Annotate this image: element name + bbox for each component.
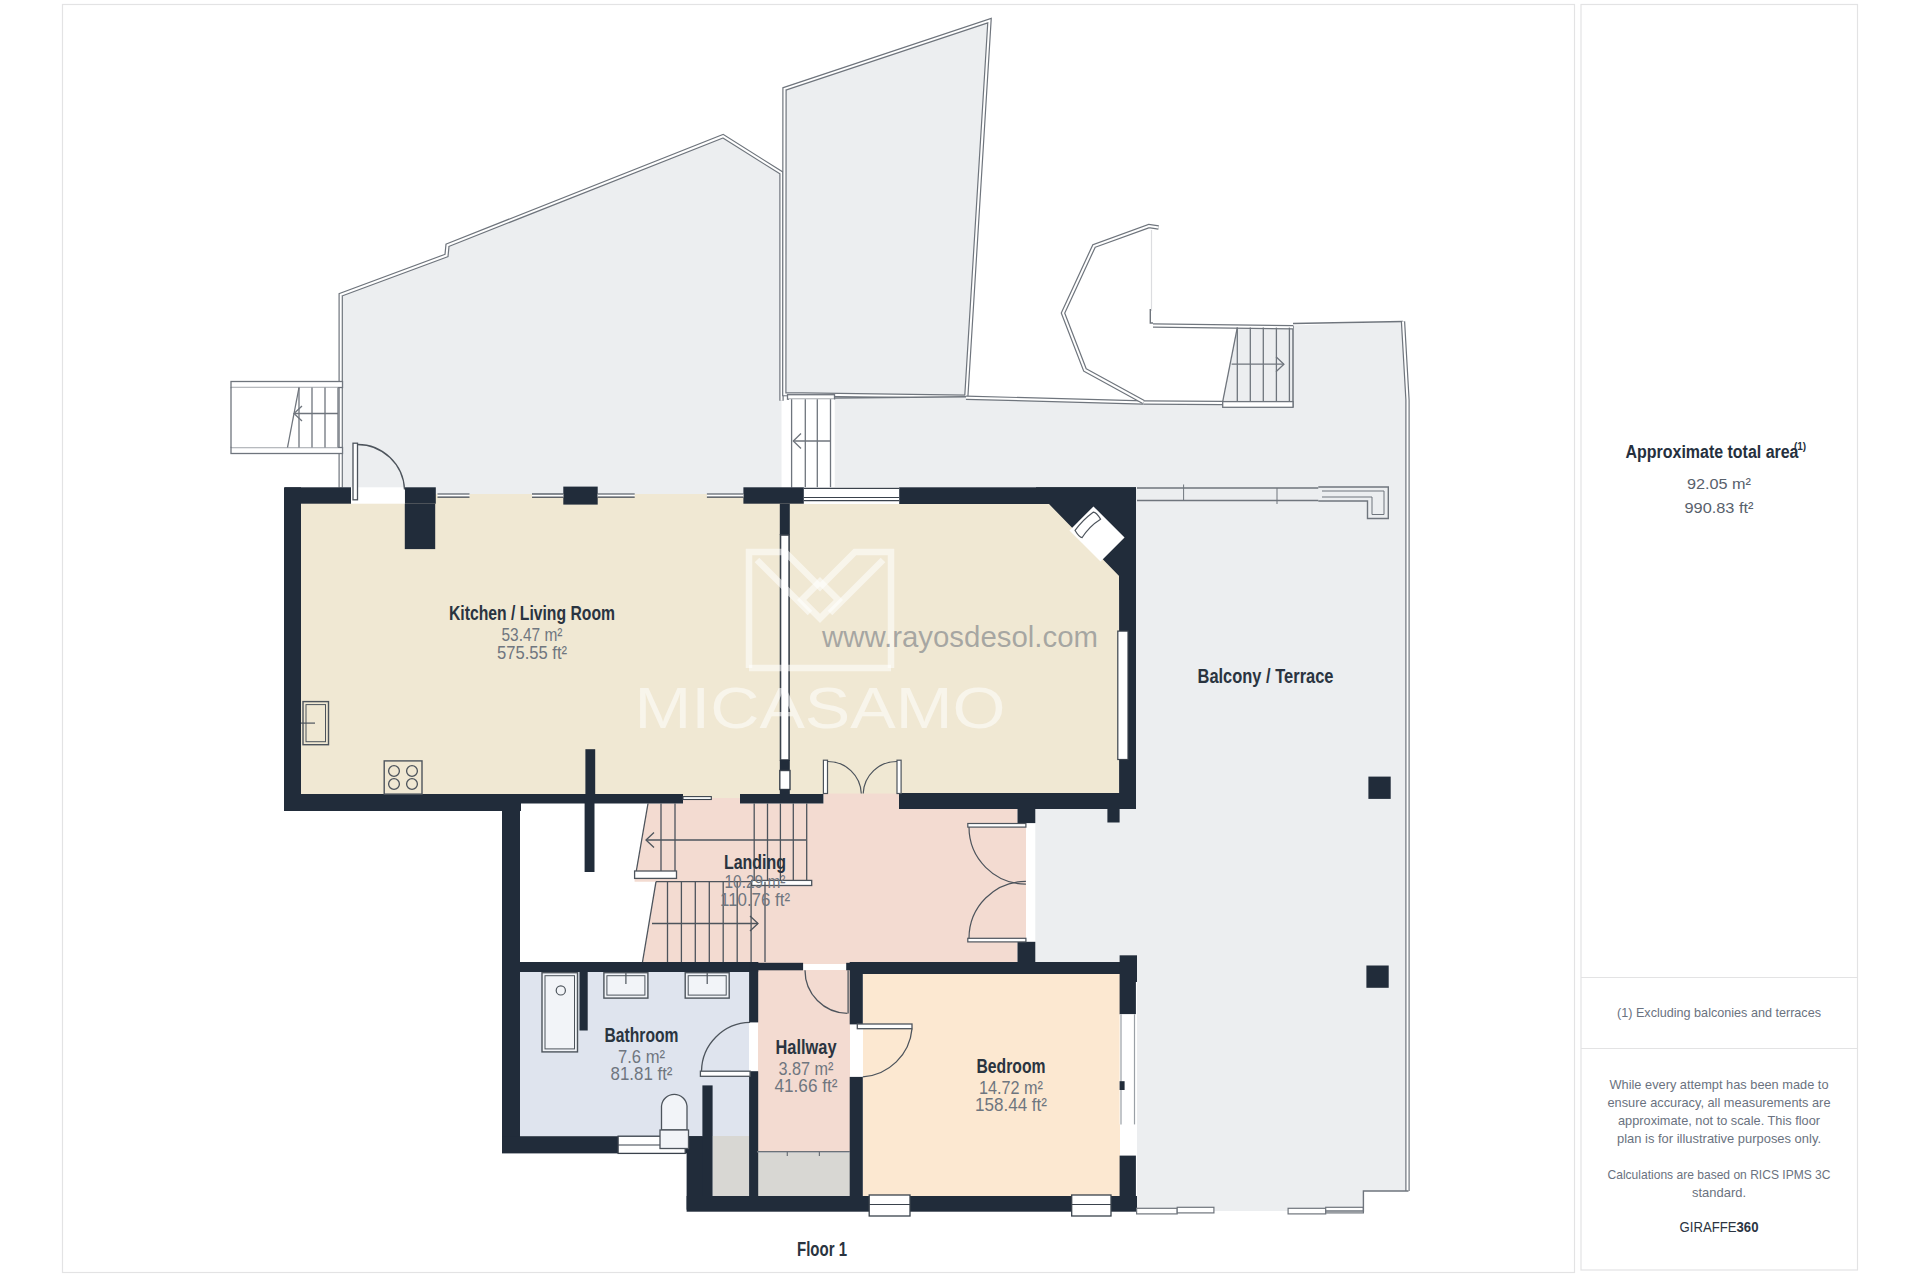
svg-text:41.66 ft²: 41.66 ft² (775, 1075, 838, 1096)
svg-text:GIRAFFE360: GIRAFFE360 (1680, 1218, 1759, 1235)
svg-text:Bedroom: Bedroom (977, 1055, 1046, 1077)
svg-text:575.55 ft²: 575.55 ft² (497, 642, 567, 663)
svg-text:www.rayosdesol.com: www.rayosdesol.com (821, 620, 1098, 653)
svg-text:(1): (1) (1794, 441, 1806, 452)
svg-text:Balcony / Terrace: Balcony / Terrace (1198, 665, 1334, 687)
svg-text:Calculations are based on RICS: Calculations are based on RICS IPMS 3C (1608, 1167, 1831, 1182)
svg-text:Landing: Landing (724, 851, 786, 873)
svg-text:158.44 ft²: 158.44 ft² (975, 1094, 1047, 1115)
svg-text:110.76 ft²: 110.76 ft² (720, 889, 790, 910)
svg-text:Hallway: Hallway (776, 1036, 838, 1058)
svg-text:Kitchen / Living Room: Kitchen / Living Room (449, 602, 615, 624)
svg-text:(1) Excluding balconies and te: (1) Excluding balconies and terraces (1617, 1005, 1821, 1020)
svg-text:Approximate total area: Approximate total area (1626, 442, 1799, 462)
svg-text:While every attempt has been m: While every attempt has been made to (1610, 1077, 1829, 1092)
svg-text:plan is for illustrative purpo: plan is for illustrative purposes only. (1617, 1131, 1821, 1146)
svg-text:approximate, not to scale. Thi: approximate, not to scale. This floor (1618, 1113, 1820, 1128)
svg-text:standard.: standard. (1692, 1185, 1746, 1200)
svg-text:Floor 1: Floor 1 (797, 1238, 847, 1260)
svg-text:Bathroom: Bathroom (605, 1024, 679, 1046)
svg-text:990.83 ft²: 990.83 ft² (1685, 499, 1754, 516)
svg-text:92.05 m²: 92.05 m² (1687, 475, 1751, 492)
svg-text:MICASAMO: MICASAMO (635, 675, 1006, 740)
svg-text:81.81 ft²: 81.81 ft² (611, 1063, 673, 1084)
svg-text:ensure accuracy, all measureme: ensure accuracy, all measurements are (1608, 1095, 1831, 1110)
